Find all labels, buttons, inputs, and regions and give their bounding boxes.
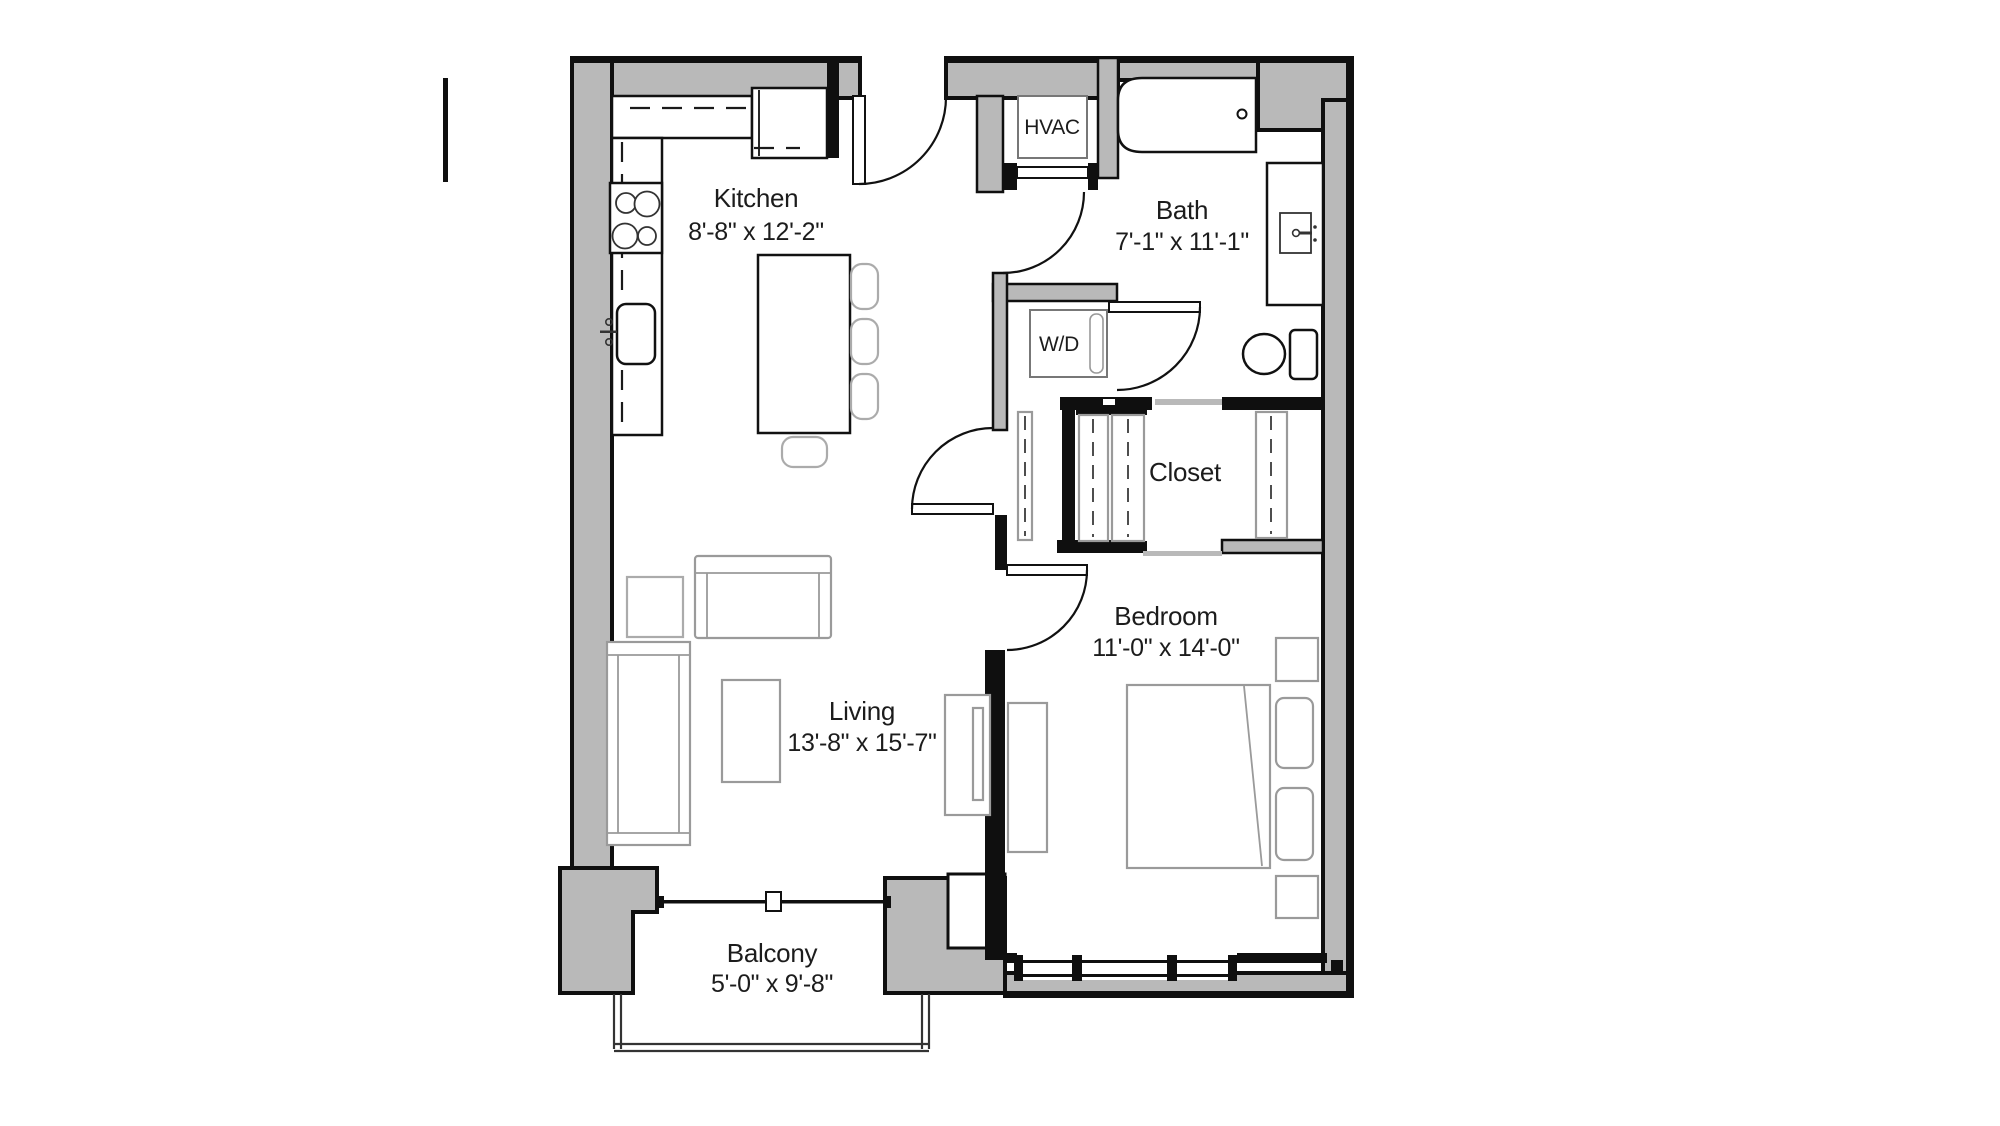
refrigerator bbox=[752, 88, 827, 158]
bedroom-window bbox=[1014, 955, 1237, 981]
toilet bbox=[1243, 330, 1317, 379]
floor-plan-drawing: HVAC W/D bbox=[0, 0, 2000, 1126]
nightstand bbox=[1276, 638, 1318, 681]
doors bbox=[853, 96, 1200, 650]
kitchen-dims: 8'-8" x 12'-2" bbox=[688, 218, 824, 246]
pillow bbox=[1276, 698, 1313, 768]
floor-plan-page: HVAC W/D bbox=[0, 0, 2000, 1126]
coffee-table bbox=[722, 680, 780, 782]
pillow bbox=[1276, 788, 1313, 860]
washer-dryer-label: W/D bbox=[1039, 333, 1079, 356]
tv-console bbox=[945, 695, 990, 815]
balcony-sliding-door bbox=[656, 892, 891, 911]
stove bbox=[610, 183, 662, 253]
kitchen-island bbox=[758, 255, 850, 433]
entry-door-leaf bbox=[853, 96, 865, 184]
wall-tick-left bbox=[443, 78, 448, 182]
hvac-closet-door bbox=[1017, 167, 1088, 178]
living-label: Living bbox=[829, 696, 895, 726]
dresser bbox=[1008, 703, 1047, 852]
balcony-dims: 5'-0" x 9'-8" bbox=[711, 970, 833, 998]
living-furniture bbox=[607, 556, 990, 845]
closet-label: Closet bbox=[1149, 457, 1222, 487]
chaise bbox=[607, 642, 690, 845]
balcony-label: Balcony bbox=[727, 938, 818, 968]
hvac-unit: HVAC bbox=[1018, 96, 1087, 158]
washer-dryer-unit: W/D bbox=[1030, 310, 1107, 377]
corner-column-dot bbox=[1331, 960, 1343, 972]
vestibule-door-arc bbox=[1003, 192, 1084, 273]
bath-vanity bbox=[1267, 163, 1323, 305]
nightstand bbox=[1276, 876, 1318, 918]
living-dims: 13'-8" x 15'-7" bbox=[787, 729, 936, 757]
bedroom-dims: 11'-0" x 14'-0" bbox=[1092, 634, 1239, 662]
kitchen-counter-top bbox=[612, 96, 752, 138]
bed bbox=[1127, 685, 1313, 868]
bath-dims: 7'-1" x 11'-1" bbox=[1115, 228, 1249, 256]
bath-door-leaf bbox=[1109, 302, 1200, 312]
bathtub bbox=[1118, 78, 1256, 152]
entry-door-arc bbox=[859, 97, 946, 184]
armchair bbox=[627, 577, 683, 637]
kitchen-label: Kitchen bbox=[714, 183, 799, 213]
bath-door-arc bbox=[1117, 307, 1200, 390]
hall-door-arc bbox=[912, 428, 993, 509]
bedroom-label: Bedroom bbox=[1114, 601, 1217, 631]
sofa bbox=[695, 556, 831, 638]
hvac-label: HVAC bbox=[1024, 116, 1080, 139]
bedroom-door-leaf bbox=[1007, 565, 1087, 575]
bedroom-door-arc bbox=[1007, 570, 1087, 650]
bath-label: Bath bbox=[1156, 195, 1208, 225]
bedroom-furniture bbox=[1008, 638, 1318, 918]
hall-door-leaf bbox=[912, 504, 993, 514]
balcony-railing bbox=[614, 994, 929, 1051]
